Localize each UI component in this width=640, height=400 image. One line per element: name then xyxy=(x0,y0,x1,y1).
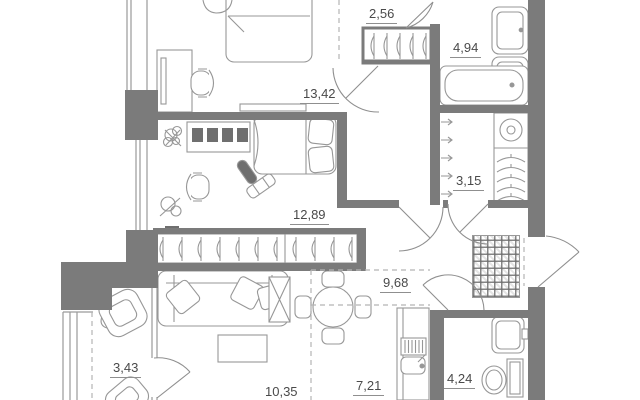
wall-bedroom-bottom xyxy=(147,112,347,120)
dining-chair-east xyxy=(355,296,371,318)
wardrobe-rack xyxy=(153,234,357,263)
wall-bath-left xyxy=(430,24,440,205)
floor-plan-drawing xyxy=(0,0,640,400)
monitor xyxy=(161,58,166,104)
dining-table xyxy=(313,287,353,327)
balcony-glazing xyxy=(63,312,93,400)
bed-double xyxy=(226,0,312,62)
door-balcony xyxy=(154,358,190,398)
dining-chair-west xyxy=(295,296,311,318)
sideboard xyxy=(187,122,250,152)
bathtub xyxy=(440,66,528,105)
area-label-closet: 2,56 xyxy=(366,7,397,24)
wall-hall-top-post xyxy=(443,200,448,208)
area-label-living: 10,35 xyxy=(262,385,301,400)
bed-single xyxy=(254,116,336,174)
area-label-kitchen: 7,21 xyxy=(353,379,384,396)
area-label-bedroom2: 12,89 xyxy=(290,208,329,225)
area-label-bathroom: 4,94 xyxy=(450,41,481,58)
door-bedroom xyxy=(333,66,379,112)
bathroom-sink-1 xyxy=(492,7,528,54)
wall-right-upper xyxy=(528,0,545,237)
door-corridor xyxy=(399,207,443,251)
door-entrance xyxy=(538,236,579,287)
dining-chair-south xyxy=(322,328,344,344)
window-bedroom xyxy=(127,0,131,90)
wall-wc-top xyxy=(444,310,528,318)
wall-right-lower xyxy=(528,287,545,400)
wall-hall-top-right xyxy=(488,200,528,208)
wall-kitchen-wc xyxy=(430,310,444,400)
area-label-bedroom: 13,42 xyxy=(300,87,339,104)
floor-plan: 2,56 4,94 13,42 3,15 12,89 9,68 3,43 10,… xyxy=(0,0,640,400)
toilet xyxy=(482,359,523,397)
wc-sink xyxy=(492,317,528,353)
shelf-radiator xyxy=(240,104,306,111)
shelf-ticks xyxy=(441,119,452,197)
desk-chair-2 xyxy=(187,173,210,201)
wall-corridor-left xyxy=(337,112,347,208)
area-label-balcony: 3,43 xyxy=(110,361,141,378)
area-label-laundry: 3,15 xyxy=(453,174,484,191)
tv-cabinet xyxy=(269,277,290,322)
laundry-unit xyxy=(494,113,528,205)
plant xyxy=(164,127,182,147)
furniture xyxy=(92,0,528,400)
wall-bath-laundry xyxy=(440,105,528,113)
dining-set xyxy=(295,271,371,344)
area-label-wc: 4,24 xyxy=(444,372,475,389)
floor-lamp xyxy=(160,197,181,216)
desk-chair xyxy=(191,69,214,97)
kitchen-counter xyxy=(397,308,429,400)
dining-chair-north xyxy=(322,271,344,287)
wardrobe-end-panel xyxy=(357,228,366,266)
door-closet xyxy=(406,2,433,28)
area-label-hallway: 9,68 xyxy=(380,276,411,293)
door-wc xyxy=(423,275,484,310)
entry-closet xyxy=(363,28,431,63)
balcony-partition xyxy=(152,288,157,400)
wall-left-block-c xyxy=(61,288,112,310)
door-laundry xyxy=(448,204,488,244)
windows xyxy=(63,0,157,400)
window-bedroom2 xyxy=(136,140,140,230)
wall-hall-top-left xyxy=(337,200,399,208)
wardrobe-top-band xyxy=(153,228,357,234)
wall-left-block-b xyxy=(61,262,158,288)
coffee-table xyxy=(218,335,267,362)
wall-left-block-a xyxy=(126,230,158,262)
